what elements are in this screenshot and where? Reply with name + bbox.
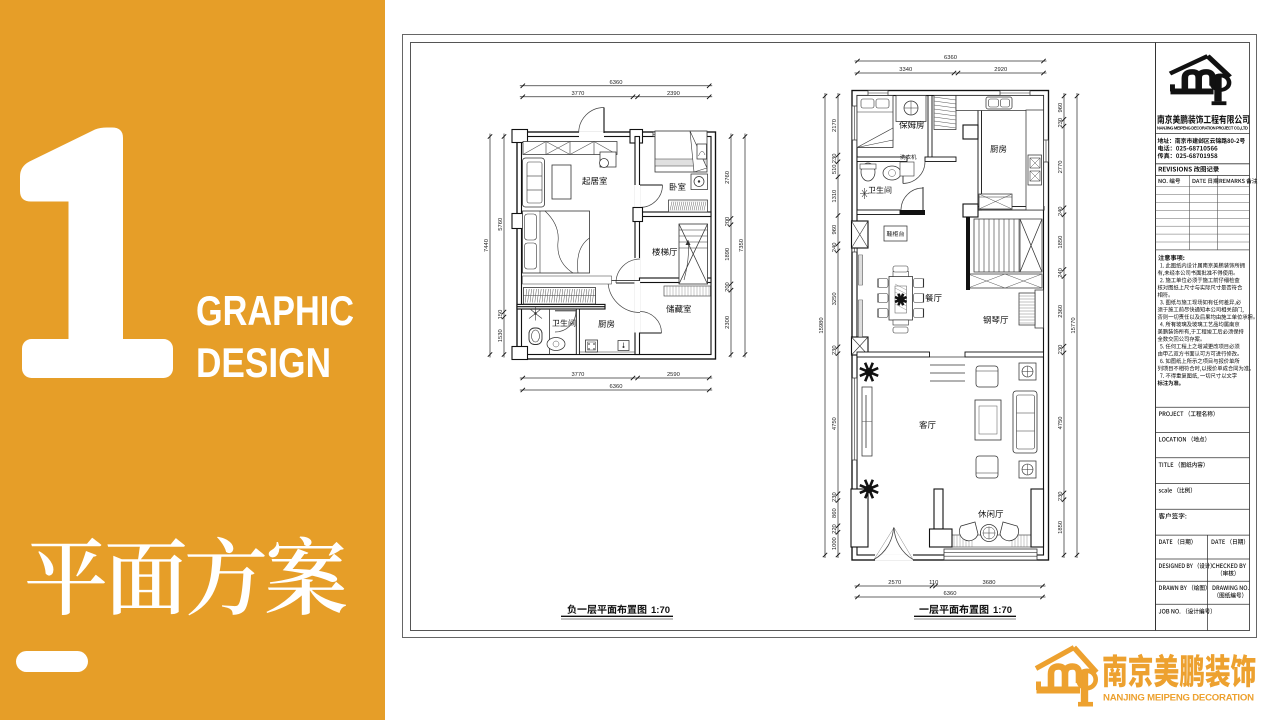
svg-text:1530: 1530: [498, 329, 504, 342]
svg-text:2390: 2390: [667, 91, 680, 97]
svg-text:NANJING MEIPENG DECORATION PRO: NANJING MEIPENG DECORATION PROJECT CO.,L…: [1157, 126, 1248, 131]
svg-text:2920: 2920: [994, 67, 1007, 73]
svg-text:4750: 4750: [832, 417, 838, 430]
svg-text:7440: 7440: [484, 239, 490, 252]
svg-text:1000: 1000: [832, 537, 838, 550]
svg-text:510: 510: [832, 164, 838, 174]
svg-text:DESIGN: DESIGN: [196, 339, 331, 386]
svg-text:2170: 2170: [832, 119, 838, 132]
svg-text:230: 230: [1058, 118, 1064, 128]
svg-text:960: 960: [832, 225, 838, 235]
svg-text:230: 230: [832, 154, 838, 164]
svg-text:1310: 1310: [832, 190, 838, 203]
svg-text:6360: 6360: [610, 384, 623, 390]
svg-text:240: 240: [832, 243, 838, 253]
svg-text:200: 200: [725, 217, 731, 227]
svg-text:15980: 15980: [819, 317, 825, 333]
svg-text:7350: 7350: [739, 239, 745, 252]
svg-text:240: 240: [1058, 206, 1064, 216]
svg-text:240: 240: [1058, 268, 1064, 278]
svg-text:230: 230: [1058, 491, 1064, 501]
svg-text:220: 220: [832, 524, 838, 534]
svg-text:230: 230: [832, 345, 838, 355]
svg-text:1850: 1850: [1058, 521, 1064, 534]
svg-text:6360: 6360: [944, 591, 957, 597]
svg-text:3340: 3340: [899, 67, 912, 73]
svg-text:2760: 2760: [725, 171, 731, 184]
svg-text:2300: 2300: [725, 316, 731, 329]
svg-text:1:70: 1:70: [993, 605, 1012, 616]
svg-text:NANJING MEIPENG DECORATION: NANJING MEIPENG DECORATION: [1103, 693, 1254, 704]
svg-text:15770: 15770: [1071, 317, 1077, 333]
svg-text:110: 110: [929, 580, 938, 586]
svg-text:6360: 6360: [944, 55, 957, 61]
svg-text:1:70: 1:70: [651, 605, 670, 616]
svg-text:3250: 3250: [832, 292, 838, 305]
svg-text:3680: 3680: [983, 580, 996, 586]
svg-text:860: 860: [832, 508, 838, 518]
svg-text:6360: 6360: [610, 80, 623, 86]
svg-text:GRAPHIC: GRAPHIC: [196, 287, 354, 334]
svg-text:150: 150: [498, 310, 504, 320]
svg-text:230: 230: [832, 492, 838, 502]
svg-text:5760: 5760: [498, 218, 504, 231]
svg-text:2770: 2770: [1058, 160, 1064, 173]
svg-text:3770: 3770: [571, 372, 584, 378]
svg-text:2590: 2590: [667, 372, 680, 378]
svg-text:200: 200: [725, 282, 731, 292]
svg-text:4750: 4750: [1058, 416, 1064, 429]
svg-text:3770: 3770: [571, 91, 584, 97]
svg-text:960: 960: [1058, 103, 1064, 113]
svg-text:1890: 1890: [725, 248, 731, 261]
svg-text:2570: 2570: [888, 580, 901, 586]
svg-text:230: 230: [1058, 345, 1064, 355]
svg-text:1850: 1850: [1058, 236, 1064, 249]
svg-text:2360: 2360: [1058, 305, 1064, 318]
